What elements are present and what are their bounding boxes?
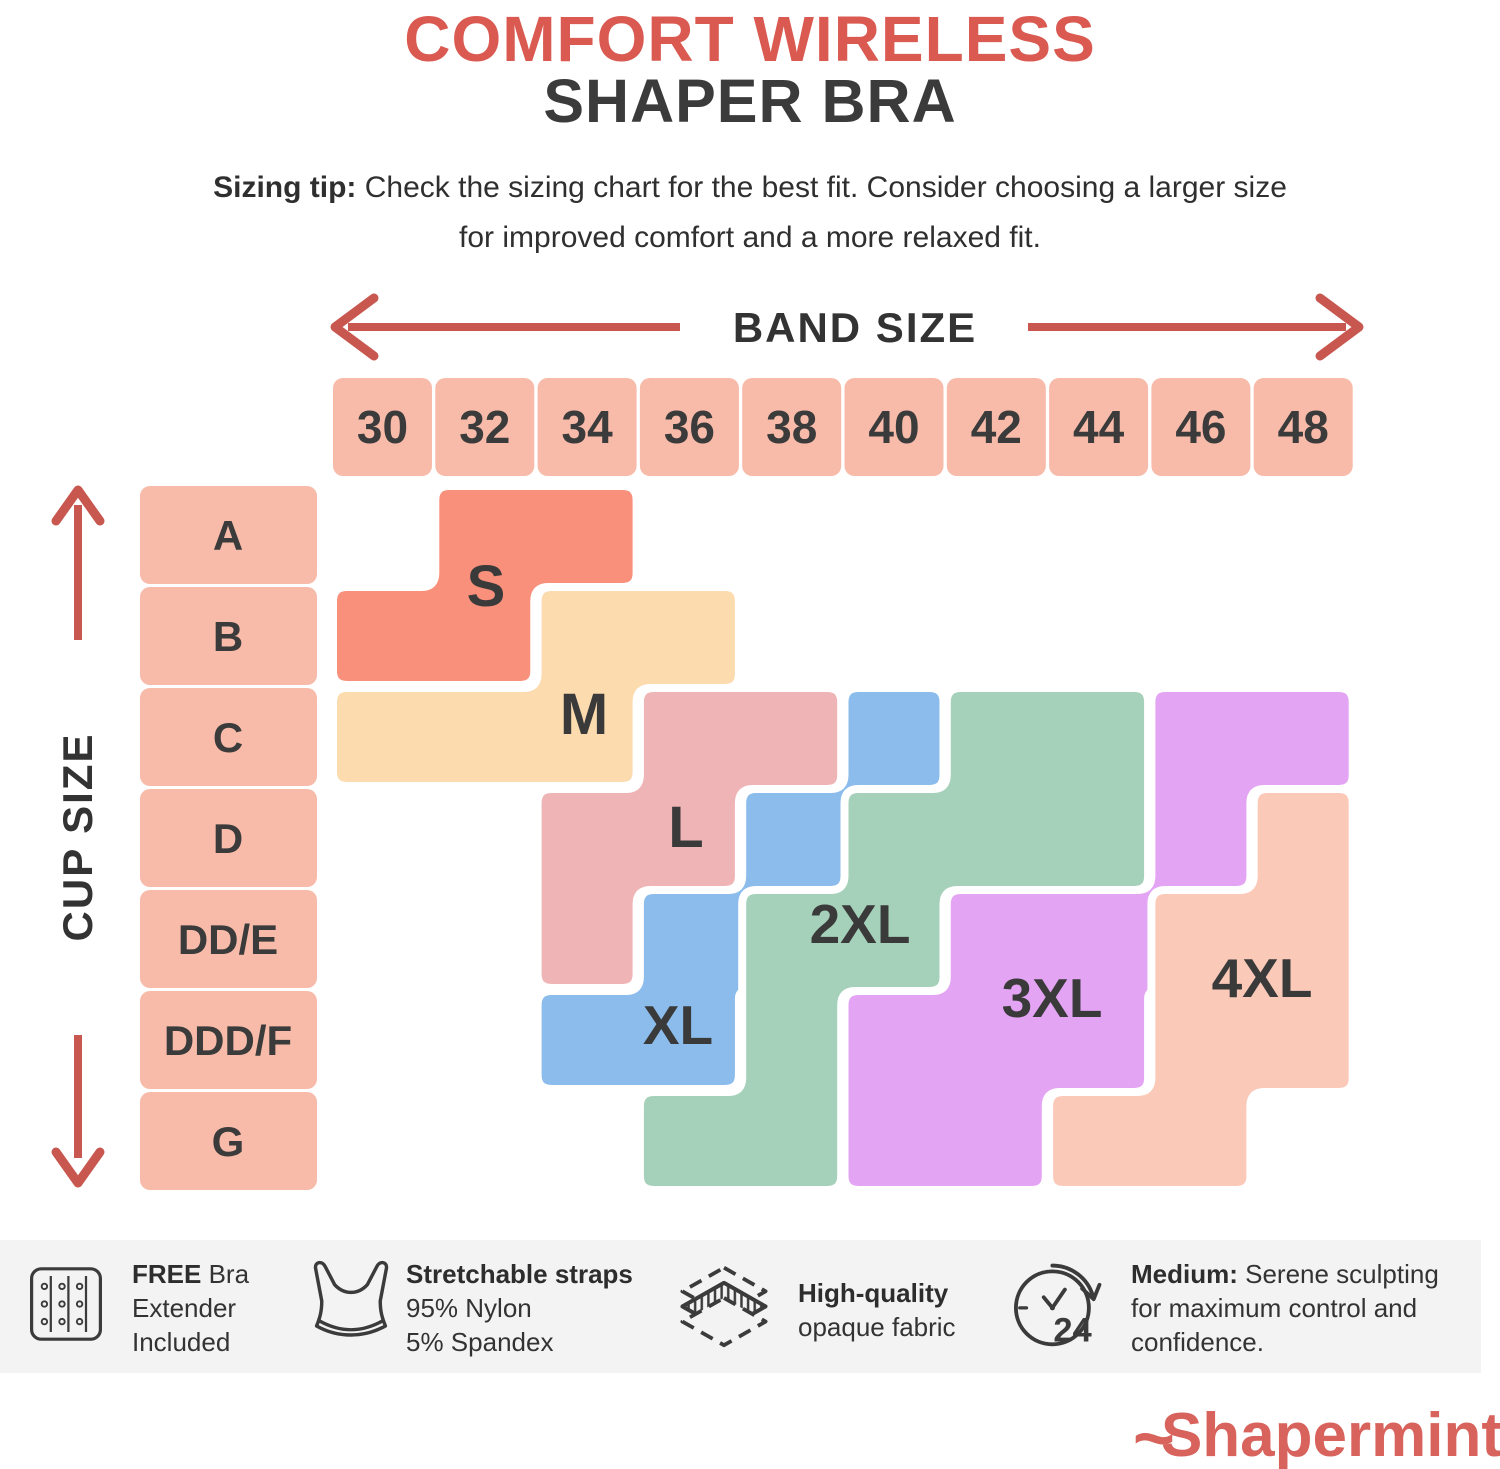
size-chart: BAND SIZECUP SIZE30323436384042444648ABC… — [0, 0, 1500, 1215]
bra-extender-icon — [26, 1264, 106, 1348]
cup-size-axis-label: CUP SIZE — [54, 733, 101, 942]
size-region-label-m: M — [560, 682, 608, 747]
size-region-label-3xl: 3XL — [1002, 967, 1103, 1029]
band-label-38: 38 — [766, 401, 817, 453]
shapermint-logo: ~Shapermint — [1133, 1398, 1500, 1469]
feature-text-4: Medium: Serene sculptingfor maximum cont… — [1131, 1257, 1439, 1359]
cup-label-g: G — [212, 1118, 245, 1165]
feature-line: Medium: Serene sculpting — [1131, 1257, 1439, 1291]
feature-line: 95% Nylon — [406, 1291, 633, 1325]
clock-24-icon: 24 — [1014, 1256, 1110, 1356]
feature-line: Stretchable straps — [406, 1257, 633, 1291]
feature-list: FREE BraExtenderIncludedStretchable stra… — [0, 1240, 1481, 1373]
cup-label-d: D — [213, 815, 243, 862]
band-label-40: 40 — [868, 401, 919, 453]
feature-line: Included — [132, 1325, 249, 1359]
cup-label-a: A — [213, 512, 243, 559]
feature-line: confidence. — [1131, 1325, 1439, 1359]
cup-label-dde: DD/E — [178, 916, 278, 963]
cup-label-b: B — [213, 613, 243, 660]
fabric-layers-icon — [672, 1262, 776, 1350]
feature-line: Extender — [132, 1291, 249, 1325]
svg-text:24: 24 — [1053, 1311, 1092, 1349]
features-bar: FREE BraExtenderIncludedStretchable stra… — [0, 1240, 1481, 1373]
band-label-30: 30 — [357, 401, 408, 453]
feature-line: opaque fabric — [798, 1310, 956, 1344]
size-region-label-4xl: 4XL — [1212, 947, 1313, 1009]
infographic-page: COMFORT WIRELESS SHAPER BRA Sizing tip: … — [0, 0, 1500, 1469]
cup-label-c: C — [213, 714, 243, 761]
band-label-46: 46 — [1175, 401, 1226, 453]
size-region-label-l: L — [668, 795, 703, 860]
size-region-label-s: S — [467, 554, 506, 619]
cup-label-dddf: DDD/F — [164, 1017, 292, 1064]
band-label-48: 48 — [1278, 401, 1329, 453]
band-size-axis-label: BAND SIZE — [733, 304, 977, 351]
band-label-44: 44 — [1073, 401, 1125, 453]
feature-line: 5% Spandex — [406, 1325, 633, 1359]
feature-text-1: FREE BraExtenderIncluded — [132, 1257, 249, 1359]
feature-line: for maximum control and — [1131, 1291, 1439, 1325]
size-region-label-2xl: 2XL — [810, 893, 911, 955]
band-label-34: 34 — [562, 401, 614, 453]
feature-line: FREE Bra — [132, 1257, 249, 1291]
size-region-label-xl: XL — [643, 994, 713, 1056]
band-label-32: 32 — [459, 401, 510, 453]
feature-text-2: Stretchable straps95% Nylon5% Spandex — [406, 1257, 633, 1359]
bra-icon — [308, 1258, 394, 1354]
feature-text-3: High-qualityopaque fabric — [798, 1276, 956, 1344]
feature-line: High-quality — [798, 1276, 956, 1310]
band-label-36: 36 — [664, 401, 715, 453]
band-label-42: 42 — [971, 401, 1022, 453]
logo-text: Shapermint — [1161, 1401, 1500, 1469]
